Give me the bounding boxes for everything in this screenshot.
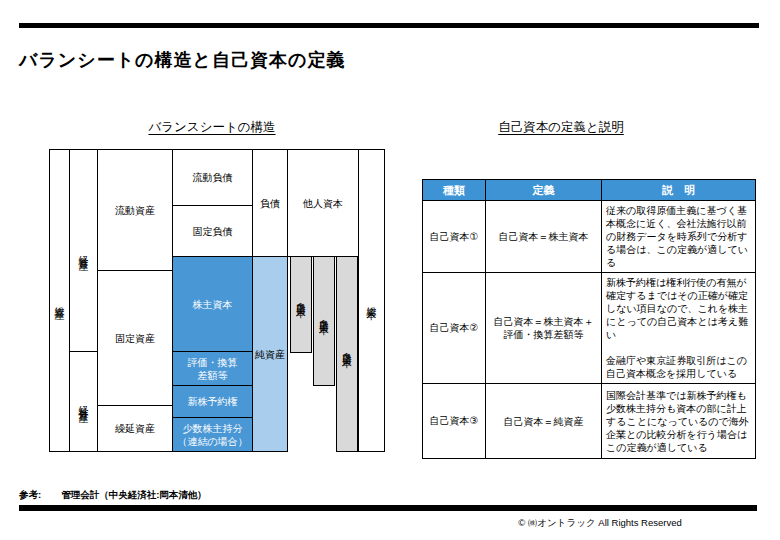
slide: { "colors": { "accent_blue": "#4a97d5", … [0, 0, 780, 540]
balance-sheet-diagram: 総資産 経営資産 経営外資産 流動資産 固定資産 繰延資産 流動負債 固定負債 … [49, 149, 385, 452]
cell-equity-bar3: 自己資本③ [336, 256, 358, 452]
table-row: 自己資本① 自己資本＝株主資本 従来の取得原価主義に基づく基本概念に近く、会社法… [423, 201, 756, 273]
row1-explanation: 従来の取得原価主義に基づく基本概念に近く、会社法施行以前の財務データを時系列で分… [602, 201, 756, 273]
cell-other-capital: 他人資本 [287, 149, 359, 257]
row3-explanation: 国際会計基準では新株予約権も少数株主持分も資本の部に計上することになっているので… [602, 384, 756, 459]
row2-type: 自己資本② [423, 273, 486, 384]
cell-non-operating-assets: 経営外資産 [69, 351, 98, 452]
cell-total-capital: 総資本 [358, 149, 385, 452]
row1-type: 自己資本① [423, 201, 486, 273]
cell-total-assets: 総資産 [49, 149, 70, 452]
cell-share-warrants: 新株予約権 [172, 385, 253, 418]
equity-definition-table: 種類 定義 説 明 自己資本① 自己資本＝株主資本 従来の取得原価主義に基づく基… [422, 179, 756, 459]
cell-valuation-adjustments: 評価・換算 差額等 [172, 351, 253, 386]
row2-definition-line2: 評価・換算差額等 [486, 328, 601, 341]
minority-line1: 少数株主持分 [183, 422, 243, 435]
row2-definition-line1: 自己資本＝株主資本＋ [486, 315, 601, 328]
cell-operating-assets: 経営資産 [69, 149, 98, 352]
header-definition: 定義 [486, 180, 602, 201]
cell-fixed-liabilities: 固定負債 [172, 205, 253, 257]
valuation-line2: 差額等 [198, 369, 228, 382]
header-explanation: 説 明 [602, 180, 756, 201]
valuation-line1: 評価・換算 [188, 356, 238, 369]
bottom-rule [19, 505, 757, 511]
right-section-title: 自己資本の定義と説明 [451, 119, 671, 136]
header-type: 種類 [423, 180, 486, 201]
table-row: 自己資本③ 自己資本＝純資産 国際会計基準では新株予約権も少数株主持分も資本の部… [423, 384, 756, 459]
row3-type: 自己資本③ [423, 384, 486, 459]
cell-deferred-assets: 繰延資産 [97, 405, 173, 452]
row2-explanation-p2: 金融庁や東京証券取引所はこの自己資本概念を採用している [606, 354, 751, 380]
cell-equity-bar1: 自己資本① [290, 256, 312, 353]
cell-current-assets: 流動資産 [97, 149, 173, 271]
reference-label: 参考: [19, 489, 41, 500]
row1-definition: 自己資本＝株主資本 [486, 201, 602, 273]
top-rule [19, 23, 759, 28]
minority-line2: （連結の場合） [177, 435, 247, 448]
reference-text: 管理会計（中央経済社:岡本清他） [61, 489, 207, 500]
page-title: バランシートの構造と自己資本の定義 [19, 48, 345, 72]
footer-reference: 参考:管理会計（中央経済社:岡本清他） [19, 489, 207, 502]
cell-net-assets: 純資産 [252, 256, 288, 452]
cell-fixed-assets: 固定資産 [97, 270, 173, 406]
cell-shareholders-equity: 株主資本 [172, 256, 253, 352]
table-row: 自己資本② 自己資本＝株主資本＋ 評価・換算差額等 新株予約権は権利行使の有無が… [423, 273, 756, 384]
cell-equity-bar2: 自己資本② [313, 256, 335, 386]
copyright-text: © ㈱オントラック All Rights Reserved [450, 517, 750, 530]
row2-explanation-p1: 新株予約権は権利行使の有無が確定するまではその正確が確定しない項目なので、これを… [606, 276, 751, 341]
table-header-row: 種類 定義 説 明 [423, 180, 756, 201]
cell-current-liabilities: 流動負債 [172, 149, 253, 206]
row3-definition: 自己資本＝純資産 [486, 384, 602, 459]
cell-liabilities: 負債 [252, 149, 288, 257]
row2-definition: 自己資本＝株主資本＋ 評価・換算差額等 [486, 273, 602, 384]
cell-minority-interests: 少数株主持分 （連結の場合） [172, 417, 253, 452]
row2-explanation: 新株予約権は権利行使の有無が確定するまではその正確が確定しない項目なので、これを… [602, 273, 756, 384]
left-section-title: バランスシートの構造 [102, 119, 322, 136]
